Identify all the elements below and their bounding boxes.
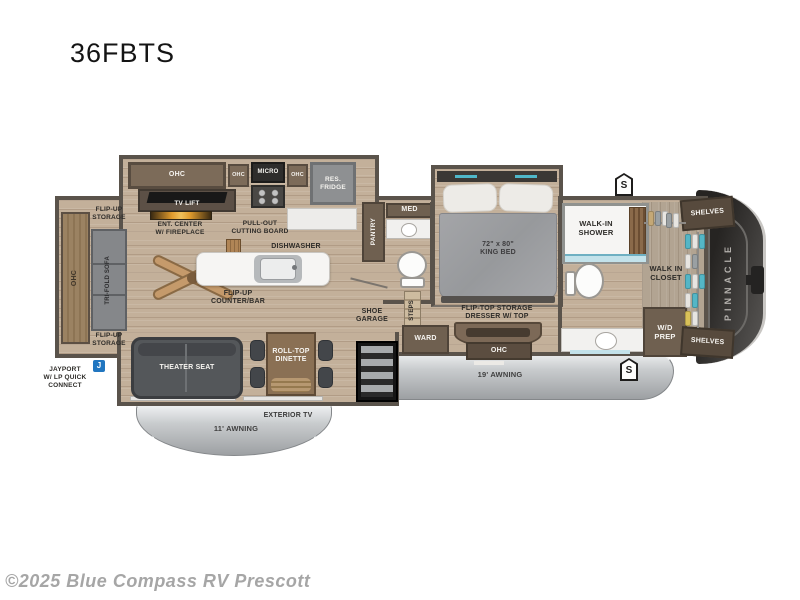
sink-basin [260,258,296,280]
speaker-badge-top-letter: S [617,175,631,194]
shoe-garage-label: SHOE GARAGE [346,308,398,325]
hanging-clothes [685,293,698,308]
shelves-bottom-label: SHELVES [690,337,724,348]
island-sink [254,255,302,283]
ohc-right-of-micro: OHC [287,164,308,187]
bath-toilet-tank [400,277,425,288]
bed-pillow-left [443,183,498,213]
theater-seat-label: THEATER SEAT [159,364,214,372]
bath-wall-right [430,202,434,304]
speaker-badge-bottom-letter: S [622,360,636,379]
hitch [751,266,764,294]
exterior-tv-label: EXTERIOR TV [254,412,322,420]
hanging-clothes [685,311,698,326]
shower-glass [565,254,646,262]
rear-toilet-bowl [574,263,604,299]
shelves-top-label: SHELVES [690,208,724,219]
wd-prep-label: W/D PREP [654,323,675,341]
ent-center-label: ENT. CENTER W/ FIREPLACE [138,221,222,237]
bedroom-ohc-label: OHC [491,347,507,355]
dinette-chair [318,367,333,388]
dishwasher-label: DISHWASHER [258,243,334,251]
roll-top-dinette: ROLL-TOP DINETTE [266,332,316,396]
jayport-icon: J [93,360,105,372]
residential-fridge: RES. FRIDGE [310,162,356,205]
pantry: PANTRY [362,202,385,262]
tri-fold-sofa: TRI-FOLD SOFA [91,229,127,331]
flip-top-dresser-label: FLIP-TOP STORAGE DRESSER W/ TOP [430,305,564,322]
bed-foot-bar [441,296,555,303]
entry-steps [356,341,398,402]
roll-top-dinette-label: ROLL-TOP DINETTE [272,348,309,365]
bed-pillow-right [499,183,554,213]
med-label: MED [401,206,417,214]
bedroom-ohc: OHC [466,342,532,360]
king-bed-label: 72" x 80" KING BED [458,241,538,258]
rear-ohc-label: OHC [71,270,79,286]
ohc-right-of-micro-label: OHC [291,172,304,179]
cooktop [251,185,285,208]
hanging-clothes [685,254,698,269]
residential-fridge-label: RES. FRIDGE [320,176,346,192]
copyright: ©2025 Blue Compass RV Prescott [5,571,310,593]
awning-19-label: 19' AWNING [440,370,560,379]
hanging-clothes [648,211,668,226]
med-cabinet: MED [386,203,433,218]
speaker-badge-top: S [615,173,633,196]
page-title: 36FBTS [70,40,175,67]
tri-fold-sofa-label: TRI-FOLD SOFA [105,256,112,305]
bedroom-slide-skirt [474,361,504,365]
theater-seat: THEATER SEAT [131,337,243,399]
jayport-label: JAYPORT W/ LP QUICK CONNECT [36,366,94,389]
tv-lift-label: TV LIFT [158,200,216,208]
jayport-icon-letter: J [97,362,101,370]
microwave-label: MICRO [258,169,279,176]
theater-seat-back [138,343,236,356]
headboard [437,171,557,182]
rear-vanity [561,328,649,352]
ohc-left-of-micro: OHC [228,164,249,187]
flip-up-storage-top-label: FLIP-UP STORAGE [86,206,132,222]
bath-toilet-bowl [397,251,427,279]
slide-skirt-right [243,396,323,401]
awning-11-label: 11' AWNING [196,424,276,433]
bath-sink [401,223,417,237]
rear-vanity-sink [595,332,617,350]
wardrobe: WARD [402,325,449,354]
wardrobe-label: WARD [414,335,436,343]
rear-vanity-glass-strip [570,350,630,354]
brand-pinnacle: PINNACLE [724,226,738,338]
flip-up-storage-bottom-label: FLIP-UP STORAGE [86,332,132,348]
ohc-main: OHC [128,162,226,189]
interior-steps-label: STEPS [409,300,416,321]
floor-plan-page: 36FBTS OHC TRI-FOLD SOFA FLIP-UP STORAGE… [0,0,800,600]
microwave: MICRO [251,162,285,183]
rear-ohc-cabinet: OHC [61,212,90,344]
pantry-label: PANTRY [370,218,378,245]
fireplace [150,211,212,220]
hanging-clothes [666,213,679,228]
flip-up-counter-label: FLIP-UP COUNTER/BAR [202,290,274,307]
interior-steps: STEPS [404,291,421,329]
sink-faucet [292,265,297,270]
walk-in-shower-label: WALK-IN SHOWER [564,219,628,237]
hanging-clothes [685,234,705,249]
dresser-drawer [466,328,530,337]
bath-vanity [386,219,433,239]
dinette-chair [250,340,265,361]
pull-out-cutting-board-label: PULL-OUT CUTTING BOARD [222,220,298,236]
dinette-chair [318,340,333,361]
dinette-chair [250,367,265,388]
ohc-main-label: OHC [169,171,185,179]
dinette-roll-edge [271,378,311,392]
ohc-left-of-micro-label: OHC [232,172,245,179]
hanging-clothes [685,274,705,289]
shower-slat-wall [629,207,646,257]
entry-steps-treads [361,346,393,397]
